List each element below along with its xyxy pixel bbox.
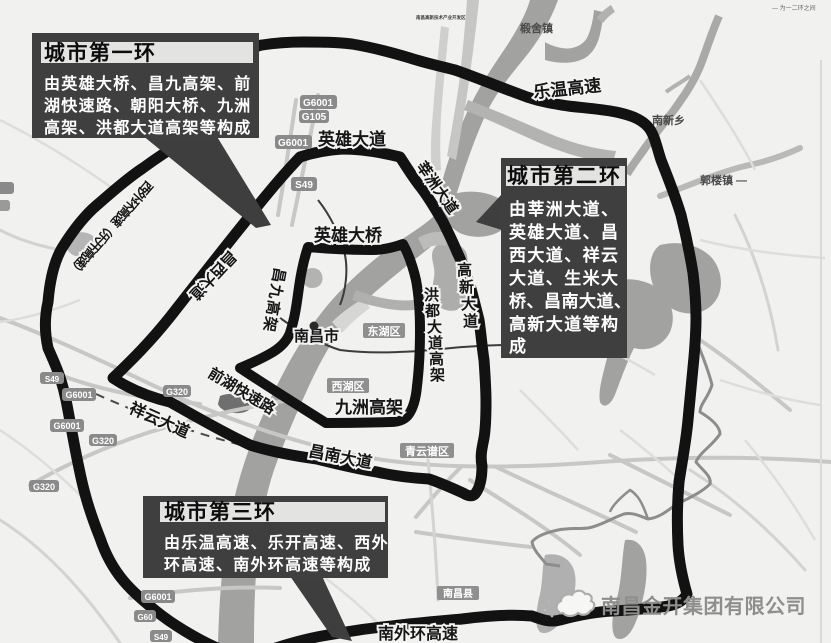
svg-text:成: 成 [509,336,527,356]
svg-text:G6001: G6001 [65,390,92,400]
svg-text:S49: S49 [295,180,313,191]
svg-text:英雄大道: 英雄大道 [318,129,386,149]
svg-text:大道、生米大: 大道、生米大 [509,268,619,288]
svg-text:南新乡: 南新乡 [652,113,685,127]
svg-text:南外环高速: 南外环高速 [378,624,458,643]
svg-text:九洲高架: 九洲高架 [334,397,403,417]
svg-text:G6001: G6001 [144,592,171,602]
svg-text:环高速、南外环高速等构成: 环高速、南外环高速等构成 [164,555,372,574]
svg-text:椴舍镇: 椴舍镇 [520,21,553,35]
svg-text:G320: G320 [92,436,114,446]
svg-text:G6001: G6001 [53,421,80,431]
svg-text:S49: S49 [45,375,60,384]
svg-text:G6001: G6001 [303,98,333,109]
svg-text:G6001: G6001 [278,138,308,149]
svg-text:S49: S49 [154,633,169,642]
svg-text:英雄大桥: 英雄大桥 [314,225,383,245]
svg-text:G105: G105 [302,112,327,123]
svg-text:G60: G60 [137,613,153,622]
svg-text:英雄大道、昌: 英雄大道、昌 [509,222,619,242]
svg-text:高架、洪都大道高架等构成: 高架、洪都大道高架等构成 [44,118,252,137]
svg-text:郭楼镇 —: 郭楼镇 — [700,173,747,187]
svg-text:城市第一环: 城市第一环 [44,41,157,65]
svg-text:城市第二环: 城市第二环 [507,164,622,188]
svg-text:西大道、祥云: 西大道、祥云 [509,245,619,265]
svg-text:G320: G320 [33,482,55,492]
svg-text:G320: G320 [166,387,188,397]
svg-text:由莘洲大道、: 由莘洲大道、 [509,199,619,219]
svg-text:南昌金开集团有限公司: 南昌金开集团有限公司 [601,594,806,618]
svg-text:南昌高新技术产业开发区: 南昌高新技术产业开发区 [416,14,466,21]
svg-text:由英雄大桥、昌九高架、前: 由英雄大桥、昌九高架、前 [44,74,252,93]
svg-text:东湖区: 东湖区 [368,324,401,338]
svg-text:城市第三环: 城市第三环 [164,500,277,524]
svg-text:由乐温高速、乐开高速、西外: 由乐温高速、乐开高速、西外 [164,533,389,552]
svg-text:高新大道等构: 高新大道等构 [509,314,619,334]
svg-text:南昌县: 南昌县 [443,587,473,600]
svg-text:青云谱区: 青云谱区 [405,444,449,458]
svg-text:桥、昌南大道、: 桥、昌南大道、 [509,291,632,311]
svg-text:湖快速路、朝阳大桥、九洲: 湖快速路、朝阳大桥、九洲 [44,96,252,115]
svg-text:西湖区: 西湖区 [332,379,365,393]
svg-text:— 为一二环之间: — 为一二环之间 [772,4,816,12]
